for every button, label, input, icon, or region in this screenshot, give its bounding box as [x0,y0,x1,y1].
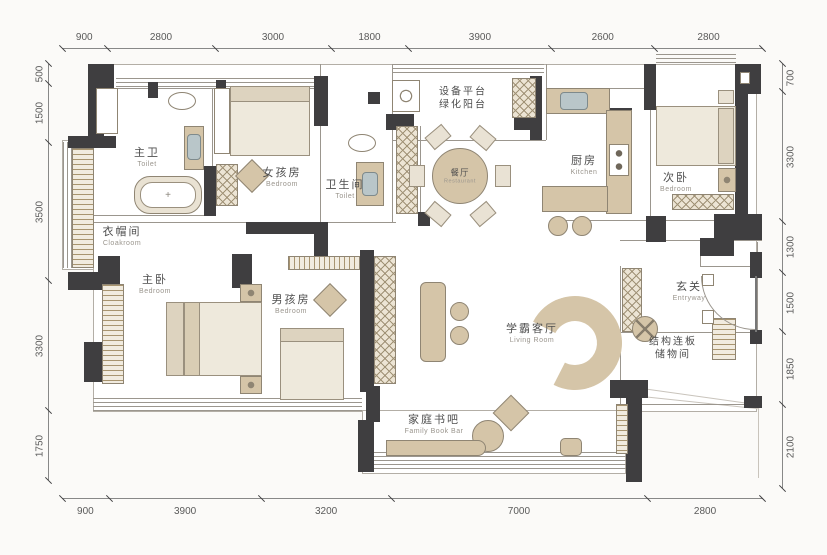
dim-seg: 1750 [32,411,48,480]
room-label-master-bath: 主卫 Toilet [134,147,160,170]
kitchen-island [542,186,608,212]
dim-seg: 2800 [647,499,763,517]
book-bar-desk [386,440,486,456]
room-label-boys-room: 男孩房 Bedroom [272,294,311,317]
blanket [184,302,200,376]
dining-chair [495,165,511,187]
terrace-edge-line [758,396,759,478]
wall-segment [644,64,656,110]
dim-seg: 3200 [261,499,390,517]
dresser-hatch [216,164,238,206]
room-label-entry: 玄关 Entryway [673,281,706,304]
pillow [166,302,184,376]
shower [392,80,420,112]
dim-seg: 1500 [783,273,799,332]
room-label-master-bedroom: 主卧 Bedroom [139,274,171,297]
dim-seg: 900 [62,499,109,517]
stool [450,302,469,321]
wall-segment [366,386,380,422]
dim-seg: 1300 [783,222,799,273]
dim-seg: 2600 [551,32,654,48]
wall-segment [714,214,762,240]
wall-segment [148,82,158,98]
dim-seg: 3500 [32,143,48,281]
nightstand [240,376,262,394]
bookshelf-hatch [374,256,396,384]
dim-seg: 3900 [408,32,551,48]
wardrobe-hatch [672,194,734,210]
partition-line [650,92,651,216]
bar-stool [548,216,568,236]
dimension-strip-bottom: 900 3900 3200 7000 2800 [62,498,763,517]
window-band [392,64,544,76]
dim-seg: 3300 [783,92,799,222]
sink [187,134,201,160]
wall-segment [646,216,666,242]
nightstand [718,90,734,104]
dim-seg: 1800 [331,32,409,48]
wall-segment [204,166,216,216]
dim-seg: 2100 [783,405,799,488]
toilet [168,92,196,110]
room-label-dining: 餐厅 Restaurant [444,167,476,185]
dim-seg: 900 [62,32,107,48]
stove [609,144,629,176]
dim-seg: 3900 [109,499,262,517]
entry-bench [702,310,714,324]
room-label-cloakroom: 衣帽间 Cloakroom [103,226,142,249]
wall-segment [368,92,380,104]
pillow [280,328,344,342]
bedside-cabinet [214,88,230,154]
window-band [63,142,72,268]
room-label-second-bedroom: 次卧 Bedroom [660,172,692,195]
wall-segment [750,330,762,344]
dim-seg: 2800 [654,32,763,48]
partition-line [93,215,205,216]
wall-segment [68,136,116,148]
wardrobe-hatch [72,148,94,268]
wall-segment [314,76,328,126]
wall-segment [232,254,252,288]
wall-segment [246,222,318,234]
dim-seg: 3300 [32,281,48,411]
room-label-guest-bath: 卫生间 Toilet [326,179,365,202]
floor-plan-page: 900 2800 3000 1800 3900 2600 2800 900 39… [0,0,827,555]
room-label-kitchen: 厨房 Kitchen [571,155,598,178]
nightstand [240,284,262,302]
room-label-living: 学霸客厅 Living Room [506,323,558,346]
dimension-strip-left: 500 1500 3500 3300 1750 [32,64,49,480]
dim-seg: 1500 [32,84,48,143]
wall-segment [68,272,98,290]
dim-seg: 700 [783,64,799,92]
washer [96,88,118,134]
room-label-storage: 结构连板 储物间 [649,337,697,362]
partition-line [620,240,762,241]
pillow [230,86,310,102]
bathtub-basin: + [140,182,196,208]
wall-segment [750,252,762,278]
dim-seg: 7000 [391,499,647,517]
planter-hatch [512,78,536,118]
wall-segment [358,420,374,472]
bar-stool [572,216,592,236]
kitchen-sink [560,92,588,110]
wardrobe-hatch [102,284,124,384]
wall-segment [360,250,374,392]
stool [450,326,469,345]
door-leaf [755,276,757,332]
pillow [718,108,734,164]
nightstand [718,168,736,192]
wall-niche [740,72,750,84]
wall-segment [735,94,748,216]
dimension-strip-right: 700 3300 1300 1500 1850 2100 [782,64,799,488]
partition-line [93,222,396,223]
room-label-balcony: 设备平台 绿化阳台 [439,87,487,112]
wall-segment [700,238,734,256]
window-band [93,398,362,412]
room-label-book-bar: 家庭书吧 Family Book Bar [405,414,464,437]
dining-chair [409,165,425,187]
wall-segment [314,222,328,256]
dimension-strip-top: 900 2800 3000 1800 3900 2600 2800 [62,32,763,49]
dim-seg: 3000 [215,32,330,48]
dim-seg: 1850 [783,332,799,405]
wall-segment [626,396,642,482]
desk-hatch [288,256,360,270]
wall-segment [744,396,762,408]
toilet [348,134,376,152]
room-label-girls-room: 女孩房 Bedroom [263,167,302,190]
window-band [656,54,736,63]
pouf [560,438,582,456]
cabinet-hatch [616,404,628,454]
dim-seg: 2800 [107,32,216,48]
partition-line [212,88,213,168]
study-table [420,282,446,362]
